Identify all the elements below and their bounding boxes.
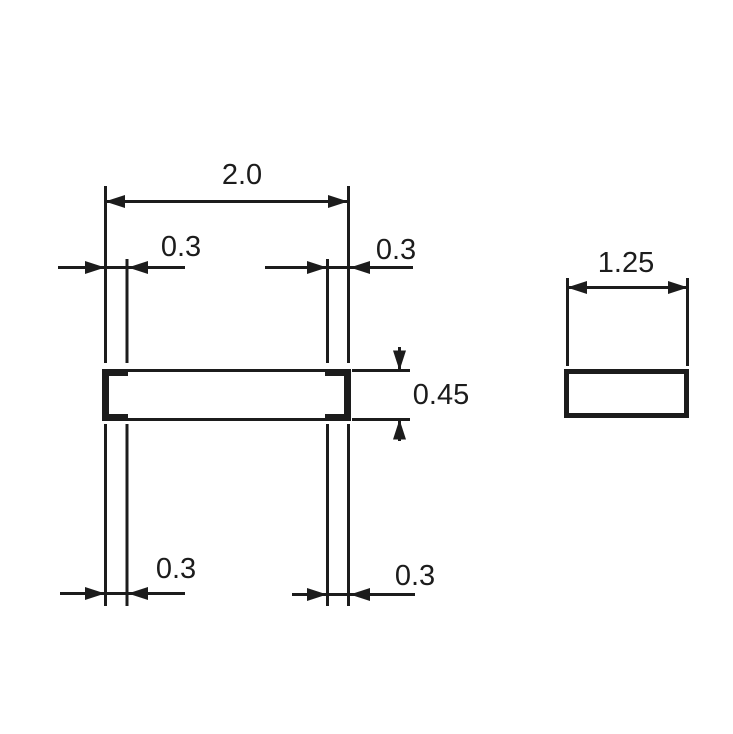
- terminal-wrap-top-left: [102, 369, 128, 376]
- terminal-cap-left: [102, 369, 109, 421]
- dimension-label-terminal-bottom-left: 0.3: [156, 553, 196, 585]
- arrowhead-left-icon: [350, 588, 370, 601]
- arrowhead-right-icon: [85, 261, 105, 274]
- dimension-terminal-top-left: 0.3: [58, 231, 201, 274]
- arrowhead-right-icon: [307, 588, 327, 601]
- arrowhead-up-icon: [393, 420, 406, 440]
- component-body-outline: [104, 371, 350, 420]
- arrowhead-left-icon: [350, 261, 370, 274]
- terminal-wrap-bottom-left: [102, 414, 128, 421]
- arrowhead-right-icon: [668, 281, 688, 294]
- arrowhead-down-icon: [393, 351, 406, 371]
- dimension-label-terminal-bottom-right: 0.3: [395, 560, 435, 592]
- dimension-label-overall-width: 2.0: [222, 159, 262, 191]
- arrowhead-left-icon: [567, 281, 587, 294]
- front-view: 2.0 0.3 0.3: [58, 159, 469, 606]
- arrowhead-right-icon: [85, 587, 105, 600]
- dimension-label-side-width: 1.25: [598, 247, 654, 279]
- dimension-body-height: 0.45: [352, 347, 469, 441]
- arrowhead-left-icon: [128, 587, 148, 600]
- dimension-label-body-height: 0.45: [413, 379, 469, 411]
- terminal-wrap-bottom-right: [325, 414, 351, 421]
- arrowhead-left-icon: [105, 195, 125, 208]
- component-body-side-outline: [567, 372, 687, 416]
- package-dimension-drawing: 2.0 0.3 0.3: [0, 0, 733, 734]
- arrowhead-right-icon: [307, 261, 327, 274]
- dimension-label-terminal-top-right: 0.3: [376, 234, 416, 266]
- dimension-overall-width: 2.0: [105, 159, 348, 208]
- dimension-label-terminal-top-left: 0.3: [161, 231, 201, 263]
- component-body-front: [102, 369, 351, 421]
- arrowhead-left-icon: [128, 261, 148, 274]
- side-view: 1.25: [567, 247, 689, 416]
- terminal-cap-right: [344, 369, 351, 421]
- technical-drawing-canvas: 2.0 0.3 0.3: [0, 0, 733, 734]
- dimension-terminal-bottom-right: 0.3: [292, 560, 435, 601]
- terminal-wrap-top-right: [325, 369, 351, 376]
- dimension-side-width: 1.25: [567, 247, 688, 294]
- arrowhead-right-icon: [328, 195, 348, 208]
- dimension-terminal-top-right: 0.3: [265, 234, 416, 274]
